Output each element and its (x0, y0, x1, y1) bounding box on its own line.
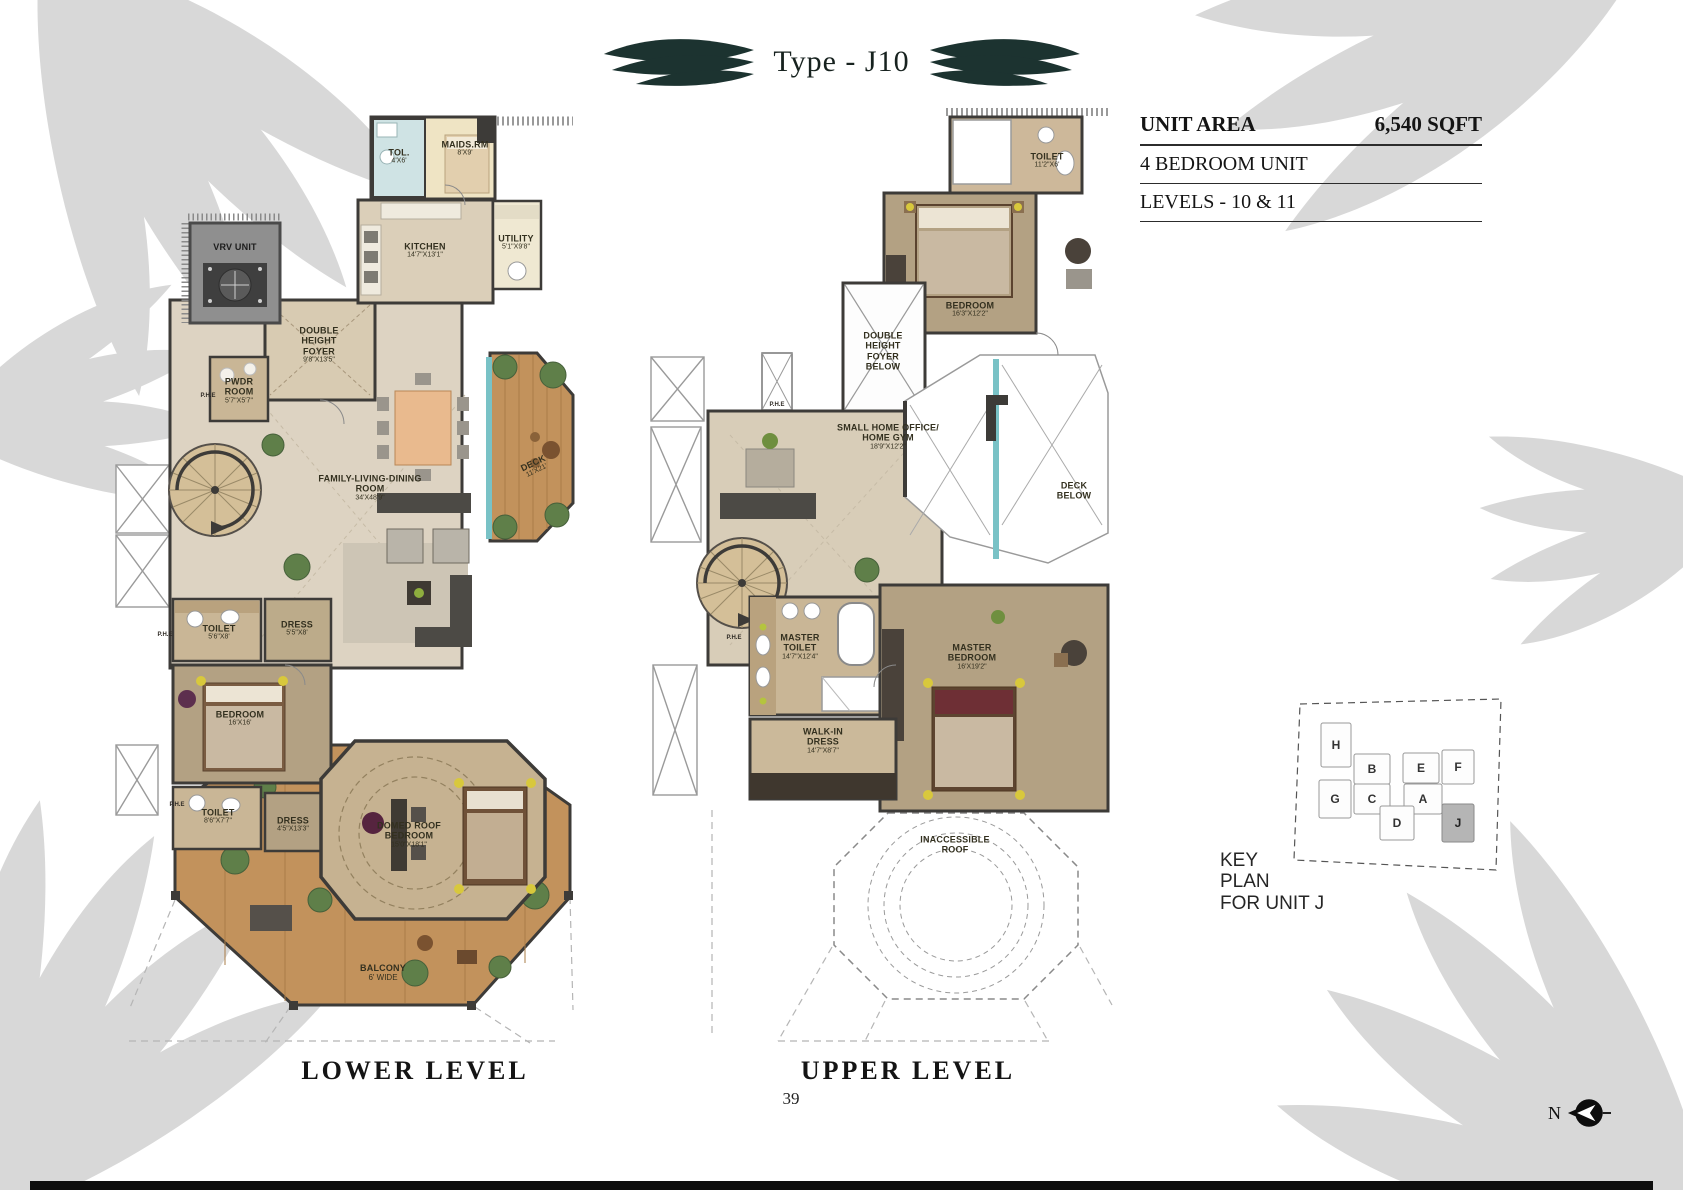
bedroom-unit-row: 4 BEDROOM UNIT (1140, 146, 1482, 184)
unit-info-panel: UNIT AREA 6,540 SQFT 4 BEDROOM UNIT LEVE… (1140, 110, 1482, 222)
upper-level-caption: UPPER LEVEL (801, 1058, 1015, 1084)
service-shafts (116, 465, 169, 815)
lower-toilet-dress (173, 787, 325, 851)
service-shafts (651, 357, 704, 795)
north-indicator: N (1548, 1096, 1611, 1130)
phe-shaft-label: P.H.E (158, 632, 173, 638)
master-toilet-area (750, 597, 896, 715)
title-bar: Type - J10 (603, 36, 1079, 88)
bedroom-area (173, 665, 331, 783)
foyer-below-void (843, 283, 925, 411)
upper-plan-graphic (650, 105, 1120, 1045)
lower-plan-graphic (115, 105, 575, 1045)
mid-toilet-dress (173, 599, 331, 661)
unit-area-label: UNIT AREA (1140, 112, 1256, 137)
unit-area-value: 6,540 SQFT (1375, 112, 1482, 137)
levels-row: LEVELS - 10 & 11 (1140, 184, 1482, 222)
walk-in-dress-area (750, 719, 896, 799)
upper-toilet-area (946, 112, 1108, 193)
key-plan-caption: KEY PLAN FOR UNIT J (1220, 850, 1324, 914)
fan-right (1415, 327, 1683, 662)
building-letter-b: B (1368, 762, 1377, 776)
master-bedroom-area (880, 585, 1108, 811)
right-wing-icon (930, 36, 1080, 88)
kitchen-area (358, 200, 493, 303)
lower-level-plan: TOL. 4'X6' MAIDS.RM 8'X9' KITCHEN 14'7"X… (115, 105, 575, 1045)
building-letter-f: F (1454, 760, 1461, 774)
vrv-unit-box (185, 217, 282, 323)
building-letter-j: J (1455, 816, 1462, 830)
upper-level-plan: TOILET 11'2"X6' BEDROOM 16'3"X12'2" DOUB… (650, 105, 1120, 1045)
building-letter-e: E (1417, 761, 1425, 775)
inaccessible-roof (834, 813, 1078, 999)
dining-table (395, 391, 451, 465)
brochure-page: Type - J10 UNIT AREA 6,540 SQFT 4 BEDROO… (0, 0, 1683, 1190)
phe-shaft-label: P.H.E (770, 402, 785, 408)
building-letter-h: H (1332, 738, 1341, 752)
utility-area (493, 201, 541, 289)
phe-shaft-label: P.H.E (201, 393, 216, 399)
page-title: Type - J10 (773, 47, 909, 77)
compass-icon (1567, 1096, 1611, 1130)
building-letter-a: A (1419, 792, 1428, 806)
building-letter-c: C (1368, 792, 1377, 806)
lounge-chair (250, 905, 292, 931)
building-letter-d: D (1393, 816, 1402, 830)
left-wing-icon (603, 36, 753, 88)
phe-shaft-label: P.H.E (727, 635, 742, 641)
lower-level-caption: LOWER LEVEL (301, 1058, 528, 1084)
north-label: N (1548, 1104, 1561, 1122)
building-letter-g: G (1330, 792, 1339, 806)
powder-room (210, 357, 268, 421)
bottom-rule-bar (30, 1181, 1653, 1190)
domed-roof-bedroom (321, 741, 545, 919)
phe-shaft-label: P.H.E (170, 802, 185, 808)
maids-room-area (371, 117, 573, 199)
sofa (377, 493, 471, 513)
deck-area (486, 353, 573, 541)
unit-area-row: UNIT AREA 6,540 SQFT (1140, 110, 1482, 146)
page-number: 39 (783, 1090, 800, 1107)
